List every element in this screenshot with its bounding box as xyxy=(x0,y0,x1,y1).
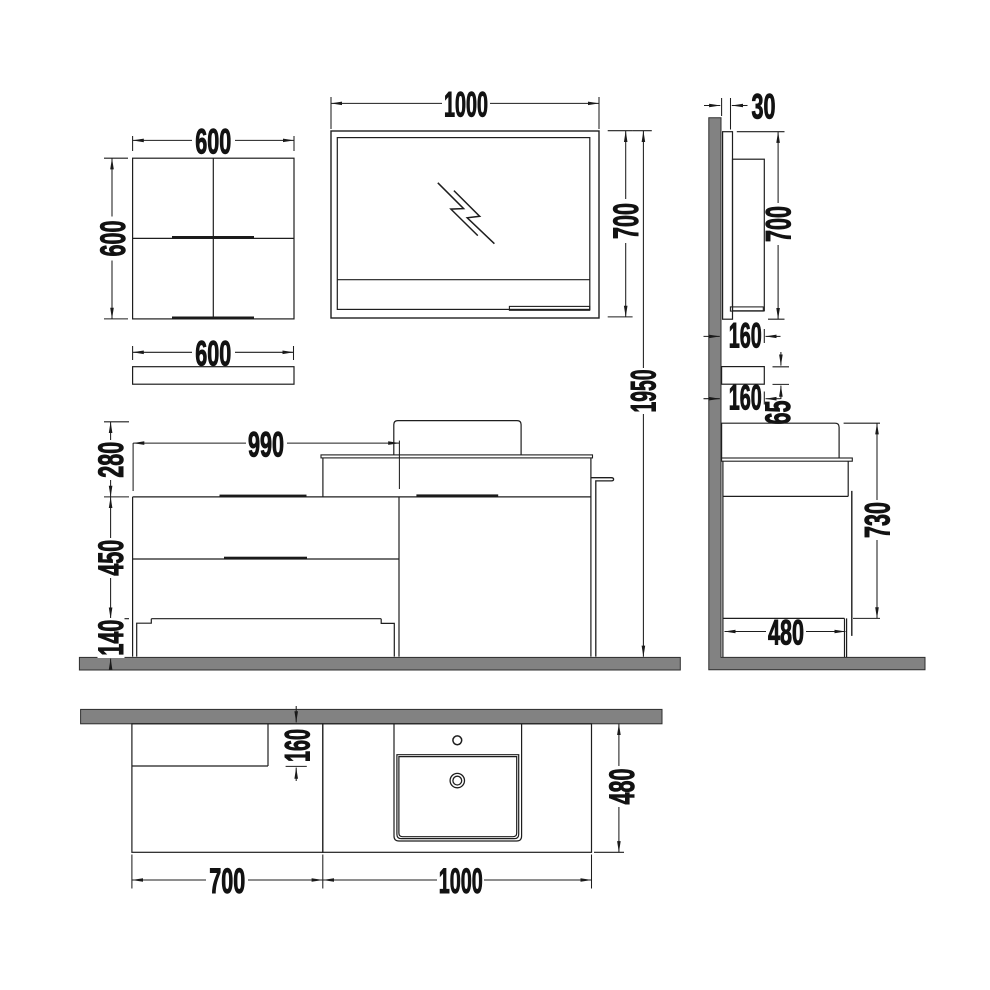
svg-text:140: 140 xyxy=(92,620,131,656)
svg-text:160: 160 xyxy=(729,379,762,418)
svg-text:600: 600 xyxy=(94,221,133,257)
svg-text:700: 700 xyxy=(607,203,646,239)
svg-text:480: 480 xyxy=(603,769,642,805)
svg-text:730: 730 xyxy=(858,502,897,538)
svg-text:280: 280 xyxy=(92,442,131,478)
svg-text:160: 160 xyxy=(729,317,762,356)
svg-text:450: 450 xyxy=(92,540,131,576)
svg-text:700: 700 xyxy=(760,206,799,242)
svg-text:600: 600 xyxy=(195,334,231,373)
svg-text:990: 990 xyxy=(248,425,284,464)
svg-text:30: 30 xyxy=(752,87,776,126)
svg-text:480: 480 xyxy=(768,614,804,653)
svg-text:700: 700 xyxy=(209,862,245,901)
svg-text:160: 160 xyxy=(279,729,318,762)
svg-text:1000: 1000 xyxy=(444,86,488,125)
svg-text:600: 600 xyxy=(195,123,231,162)
svg-text:1950: 1950 xyxy=(625,370,664,413)
svg-text:1000: 1000 xyxy=(439,862,483,901)
